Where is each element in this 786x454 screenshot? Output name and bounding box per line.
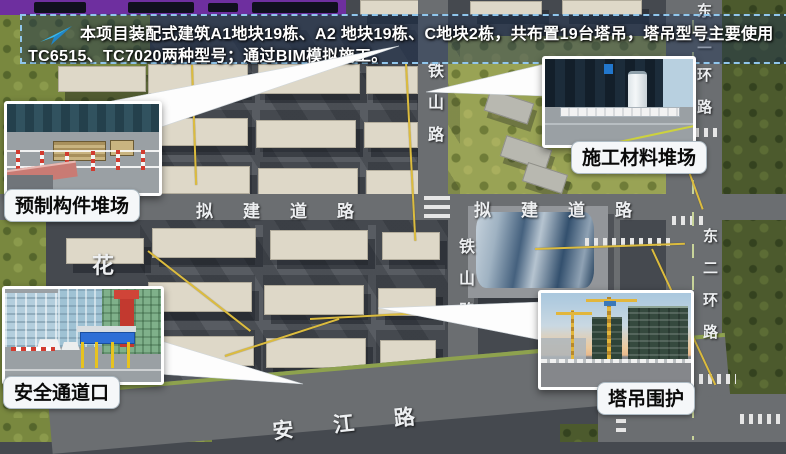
road-label-proposed-right: 拟建道路	[474, 196, 662, 221]
crane-mast	[571, 310, 574, 359]
inset-safety-passage	[2, 286, 164, 385]
building	[470, 1, 542, 15]
precast-stack	[110, 140, 133, 156]
building	[264, 285, 364, 315]
striped-post	[91, 151, 95, 171]
materials-silo	[628, 71, 647, 110]
canopy-post	[95, 342, 98, 368]
banner-text-line1: 本项目装配式建筑A1地块19栋、A2 地块19栋、C地块2栋，共布置19台塔吊，…	[80, 20, 774, 44]
crane-cab	[604, 301, 616, 306]
inset-materials-yard	[542, 56, 696, 148]
canopy-post	[127, 342, 130, 368]
crane-building-right	[628, 306, 688, 363]
fence-rail	[7, 150, 159, 152]
road-line	[545, 123, 693, 125]
callout-label-safety: 安全通道口	[3, 376, 120, 409]
striped-post	[141, 150, 145, 170]
callout-label-crane: 塔吊围护	[597, 382, 695, 415]
canopy-post	[111, 342, 114, 368]
building	[382, 232, 440, 260]
road-label-tieshan-upper: 铁山路	[421, 62, 445, 158]
crane-jib	[556, 312, 592, 315]
crane-far-buildings	[541, 338, 586, 359]
building	[258, 168, 358, 196]
road-label-tieshan-lower: 铁山路	[452, 238, 476, 334]
materials-crane-cab	[604, 64, 613, 74]
road-label-proposed-left: 拟建道路	[196, 197, 384, 222]
building	[258, 64, 360, 94]
building	[148, 166, 250, 194]
building	[366, 66, 418, 94]
precast-buildings	[7, 104, 159, 132]
crosswalk	[424, 196, 450, 218]
callout-label-materials: 施工材料堆场	[571, 141, 707, 174]
road-label-hua: 花	[92, 248, 114, 280]
top-bar-segment	[252, 2, 338, 13]
top-bar-segment	[34, 2, 86, 13]
building	[152, 228, 256, 258]
building	[562, 0, 642, 15]
canopy-post	[81, 342, 84, 368]
building	[266, 338, 366, 368]
crosswalk	[672, 216, 706, 225]
striped-post	[116, 150, 120, 170]
building	[256, 120, 356, 148]
callout-label-precast: 预制构件堆场	[4, 189, 140, 222]
building	[58, 66, 146, 92]
safety-tent	[61, 342, 80, 350]
site-fence	[541, 359, 691, 363]
inset-crane-enclosure	[538, 290, 694, 390]
top-bar-segment	[128, 2, 194, 13]
safety-hoist-top	[114, 290, 139, 299]
safety-barrier	[11, 347, 55, 352]
ground-line	[5, 369, 161, 371]
top-accent-bar	[0, 0, 346, 15]
building	[360, 0, 422, 15]
building	[270, 230, 368, 260]
banner-text-line2: TC6515、TC7020两种型号；通过BIM模拟施工。	[28, 42, 388, 66]
crosswalk	[740, 414, 784, 424]
safety-building-left	[5, 293, 58, 347]
materials-sky	[663, 59, 693, 107]
striped-post	[16, 150, 20, 170]
road-label-ring-lower: 东二环路	[699, 228, 720, 356]
building	[148, 64, 248, 94]
top-bar-segment	[208, 3, 238, 12]
inset-precast-yard	[4, 101, 162, 196]
materials-fence	[560, 107, 680, 117]
